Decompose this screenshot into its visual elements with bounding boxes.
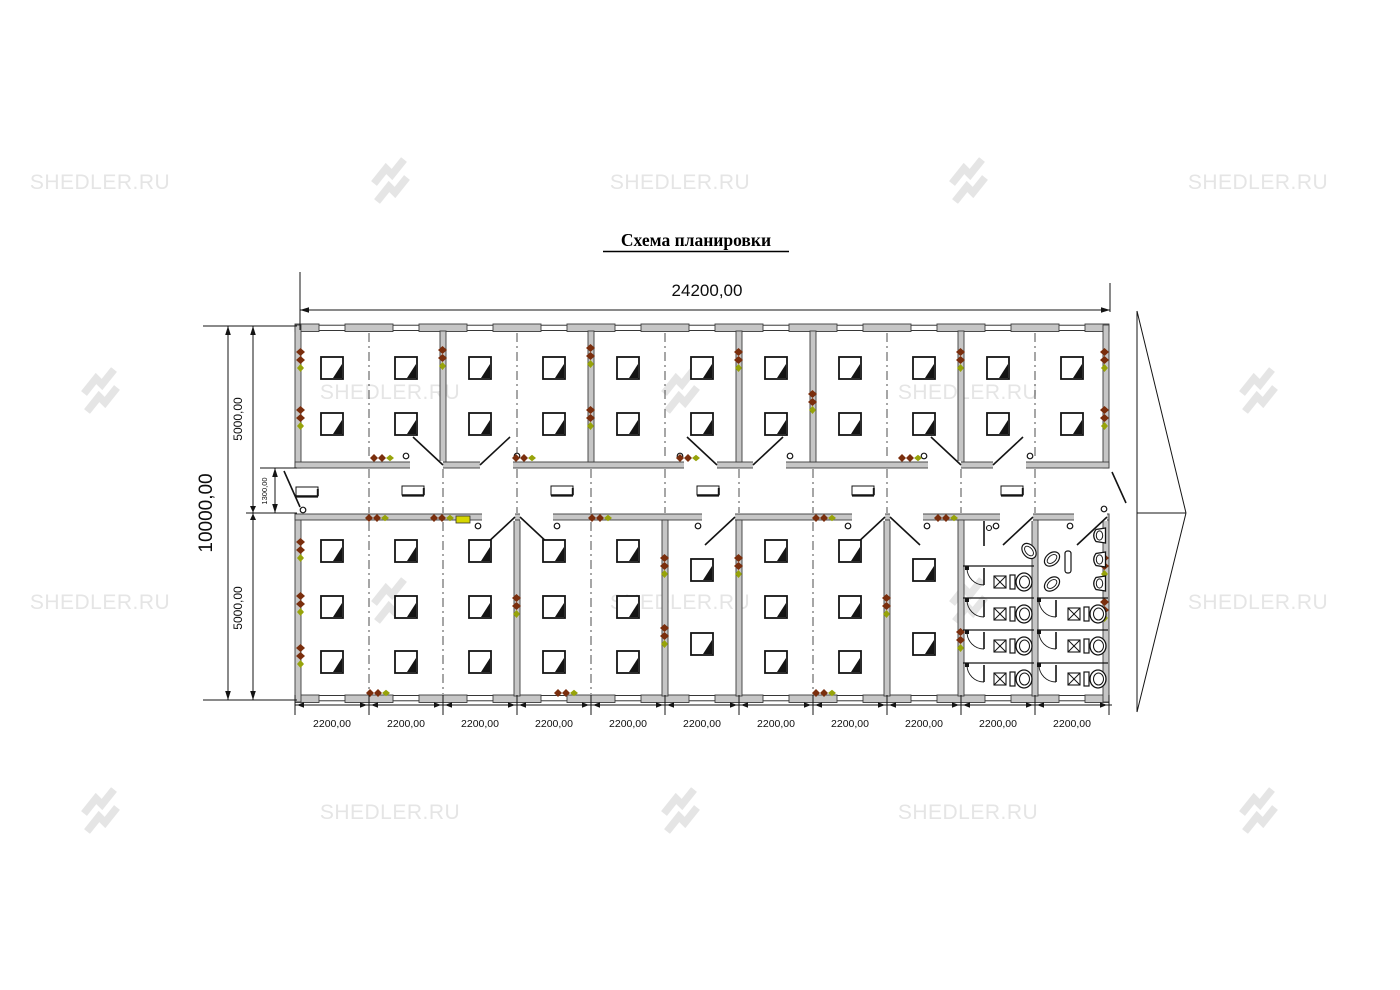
bed-symbol xyxy=(765,357,787,379)
heater-symbol xyxy=(430,514,454,522)
heater-symbol xyxy=(898,454,922,462)
door-opening xyxy=(753,461,786,469)
door-handle xyxy=(300,507,306,513)
right-wall xyxy=(1103,325,1109,468)
heater-symbol xyxy=(676,454,700,462)
floor-drain xyxy=(994,608,1006,620)
bed-symbol xyxy=(321,540,343,562)
hinge xyxy=(1037,630,1041,634)
door-opening xyxy=(1074,513,1107,521)
bed-symbol xyxy=(765,540,787,562)
module-dimension-label: 2200,00 xyxy=(831,718,869,730)
bed-symbol xyxy=(469,413,491,435)
door-handle xyxy=(924,523,930,529)
door-handle xyxy=(845,523,851,529)
hinge xyxy=(965,566,969,570)
bed-symbol xyxy=(765,413,787,435)
toilet xyxy=(1084,605,1106,623)
door-handle xyxy=(993,523,999,529)
stall-door-arc xyxy=(967,568,984,585)
heater-symbol xyxy=(296,406,305,430)
dimension-arrow xyxy=(434,702,441,708)
door-handle xyxy=(921,453,927,459)
bed-symbol xyxy=(321,596,343,618)
door-opening xyxy=(520,513,553,521)
bed-symbol xyxy=(691,413,713,435)
door-handle xyxy=(987,526,992,531)
module-dimension-label: 2200,00 xyxy=(387,718,425,730)
dimension-arrow xyxy=(656,702,663,708)
bed-symbol xyxy=(913,413,935,435)
bed-symbol xyxy=(395,596,417,618)
floor-plan-drawing: Схема планировки 24200,00 10000,00 xyxy=(0,0,1400,990)
bed-symbol xyxy=(913,633,935,655)
bed-symbol xyxy=(395,357,417,379)
module-dimension-label: 2200,00 xyxy=(535,718,573,730)
bed-symbol xyxy=(543,413,565,435)
dimension-arrow xyxy=(297,702,304,708)
toilet xyxy=(1010,670,1032,688)
dimension-arrow xyxy=(730,702,737,708)
stall-door-arc xyxy=(1039,632,1056,649)
dimension-arrow xyxy=(963,702,970,708)
module-dimension-label: 2200,00 xyxy=(313,718,351,730)
left-wall xyxy=(295,325,301,468)
floor-drain xyxy=(994,673,1006,685)
wall-pier xyxy=(419,324,467,332)
stall-door-arc xyxy=(967,665,984,682)
door-leaf xyxy=(1112,472,1126,503)
heater-symbol xyxy=(812,689,836,697)
corridor-mats xyxy=(296,486,1023,496)
bed-symbol xyxy=(617,651,639,673)
wall-pier xyxy=(715,324,763,332)
highlight-marker xyxy=(456,516,470,523)
bed-symbol xyxy=(1061,413,1083,435)
dimension-arrow xyxy=(878,702,885,708)
bed-symbol xyxy=(321,651,343,673)
dimension-arrow xyxy=(889,702,896,708)
dimension-arrow xyxy=(371,702,378,708)
toilet xyxy=(1084,670,1106,688)
bed-symbol xyxy=(839,540,861,562)
door-opening xyxy=(993,461,1026,469)
corridor-mat xyxy=(852,486,874,495)
wall-pier xyxy=(789,324,837,332)
bed-symbol xyxy=(691,357,713,379)
bed-symbol xyxy=(913,357,935,379)
dimension-arrow xyxy=(1026,702,1033,708)
wall-pier xyxy=(567,324,615,332)
corridor-mat xyxy=(697,486,719,495)
bed-symbol xyxy=(765,596,787,618)
bed-symbol xyxy=(617,596,639,618)
bed-symbol xyxy=(839,357,861,379)
dimension-corridor: 1300,00 xyxy=(260,477,269,504)
bed-symbol xyxy=(543,596,565,618)
corridor-mat xyxy=(1001,486,1023,495)
bed-symbol xyxy=(469,651,491,673)
door-opening xyxy=(1000,513,1033,521)
door-opening xyxy=(890,513,923,521)
door-handle xyxy=(695,523,701,529)
module-dimension-label: 2200,00 xyxy=(461,718,499,730)
bed-symbol xyxy=(987,413,1009,435)
bed-symbol xyxy=(691,633,713,655)
door-opening xyxy=(480,461,513,469)
utility-sink xyxy=(1065,551,1071,573)
heater-symbol xyxy=(588,514,612,522)
bed-symbol xyxy=(913,559,935,581)
dimension-arrow xyxy=(360,702,367,708)
toilet xyxy=(1084,637,1106,655)
urinal xyxy=(1094,552,1106,567)
washbasin xyxy=(1042,574,1063,594)
heater-symbol xyxy=(366,689,390,697)
heater-symbol xyxy=(365,514,389,522)
corridor-mat xyxy=(402,486,424,495)
floor-drain xyxy=(1068,608,1080,620)
dimension-arrow xyxy=(1037,702,1044,708)
heater-symbol xyxy=(512,454,536,462)
corridor-mat xyxy=(296,487,318,496)
door-leaf xyxy=(480,437,510,465)
door-opening xyxy=(928,461,961,469)
wall-pier xyxy=(493,324,541,332)
door-leaf xyxy=(753,437,783,465)
door-opening xyxy=(702,513,735,521)
bed-symbol xyxy=(321,413,343,435)
bed-symbol xyxy=(395,413,417,435)
bed-symbol xyxy=(469,596,491,618)
bed-symbol xyxy=(543,357,565,379)
drawing-title: Схема планировки xyxy=(621,230,771,250)
module-dimension-label: 2200,00 xyxy=(683,718,721,730)
floor-drain xyxy=(1068,673,1080,685)
door-handle xyxy=(1101,506,1107,512)
wall-pier xyxy=(641,324,689,332)
washbasin xyxy=(1042,549,1063,569)
bed-symbol xyxy=(839,596,861,618)
door-leaf xyxy=(687,437,717,465)
toilet xyxy=(1010,573,1032,591)
heater-symbol xyxy=(934,514,958,522)
bed-symbol xyxy=(617,357,639,379)
module-dimension-label: 2200,00 xyxy=(1053,718,1091,730)
bed-symbol xyxy=(617,540,639,562)
drawing-page: SHEDLER.RUSHEDLER.RUSHEDLER.RUSHEDLER.RU… xyxy=(0,0,1400,990)
partition-wall xyxy=(736,520,742,696)
bed-symbol xyxy=(543,540,565,562)
module-dimension-label: 2200,00 xyxy=(757,718,795,730)
heater-symbol xyxy=(296,348,305,372)
heater-symbol xyxy=(554,689,578,697)
dimension-arrow xyxy=(593,702,600,708)
wall-pier xyxy=(1011,324,1059,332)
dimension-arrow xyxy=(804,702,811,708)
wall-pier xyxy=(863,324,911,332)
partition-wall xyxy=(958,520,964,696)
partition-wall xyxy=(662,520,668,696)
bed-symbol xyxy=(321,357,343,379)
bed-symbol xyxy=(691,559,713,581)
door-handle xyxy=(554,523,560,529)
wall-pier xyxy=(937,324,985,332)
toilet xyxy=(1010,637,1032,655)
door-opening xyxy=(852,513,885,521)
bed-symbol xyxy=(1061,357,1083,379)
hinge xyxy=(1037,598,1041,602)
bed-symbol xyxy=(839,413,861,435)
bed-symbol xyxy=(469,357,491,379)
hinge xyxy=(1037,663,1041,667)
door-opening xyxy=(410,461,443,469)
roof-gable-profile xyxy=(1137,311,1186,712)
door-leaf xyxy=(705,517,735,545)
bed-symbol xyxy=(395,540,417,562)
bed-symbol xyxy=(765,651,787,673)
dimension-arrow xyxy=(582,702,589,708)
dimension-arrow xyxy=(508,702,515,708)
urinal xyxy=(1094,528,1106,543)
door-handle xyxy=(1027,453,1033,459)
toilet xyxy=(1010,605,1032,623)
door-leaf xyxy=(993,437,1023,465)
heater-symbol xyxy=(438,346,447,370)
door-handle xyxy=(787,453,793,459)
module-dimension-label: 2200,00 xyxy=(609,718,647,730)
module-dimension-label: 2200,00 xyxy=(979,718,1017,730)
dimension-total-height: 10000,00 xyxy=(196,473,217,552)
door-leaf xyxy=(890,517,920,545)
door-leaf xyxy=(413,437,443,465)
bed-symbol xyxy=(839,651,861,673)
dimension-arrow xyxy=(815,702,822,708)
door-leaf xyxy=(931,437,961,465)
stall-door-arc xyxy=(1039,665,1056,682)
heater-symbol xyxy=(370,454,394,462)
heater-symbol xyxy=(812,514,836,522)
door-handle xyxy=(475,523,481,529)
door-opening xyxy=(482,513,515,521)
dimension-total-width: 24200,00 xyxy=(672,281,743,300)
floor-drain xyxy=(1068,640,1080,652)
bed-symbol xyxy=(987,357,1009,379)
corridor-mat xyxy=(551,486,573,495)
bed-symbol xyxy=(469,540,491,562)
bed-symbol xyxy=(395,651,417,673)
dimension-arrow xyxy=(519,702,526,708)
bed-symbol xyxy=(617,413,639,435)
door-leaf xyxy=(1003,517,1033,545)
stall-door-arc xyxy=(967,600,984,617)
dimension-arrow xyxy=(667,702,674,708)
door-opening xyxy=(684,461,717,469)
dimension-top-section: 5000,00 xyxy=(231,397,245,441)
wall-pier xyxy=(345,324,393,332)
module-dimension-label: 2200,00 xyxy=(905,718,943,730)
dimension-arrow xyxy=(741,702,748,708)
stall-door-arc xyxy=(1039,600,1056,617)
stall-door-arc xyxy=(967,632,984,649)
dimension-arrow xyxy=(952,702,959,708)
hinge xyxy=(965,598,969,602)
door-handle xyxy=(403,453,409,459)
dimension-arrow xyxy=(445,702,452,708)
floor-drain xyxy=(994,640,1006,652)
floor-drain xyxy=(994,576,1006,588)
hinge xyxy=(965,663,969,667)
hinge xyxy=(965,630,969,634)
dimension-bottom-section: 5000,00 xyxy=(231,586,245,630)
dimension-arrow xyxy=(1100,702,1107,708)
bed-symbol xyxy=(543,651,565,673)
urinal xyxy=(1094,576,1106,591)
door-handle xyxy=(1067,523,1073,529)
